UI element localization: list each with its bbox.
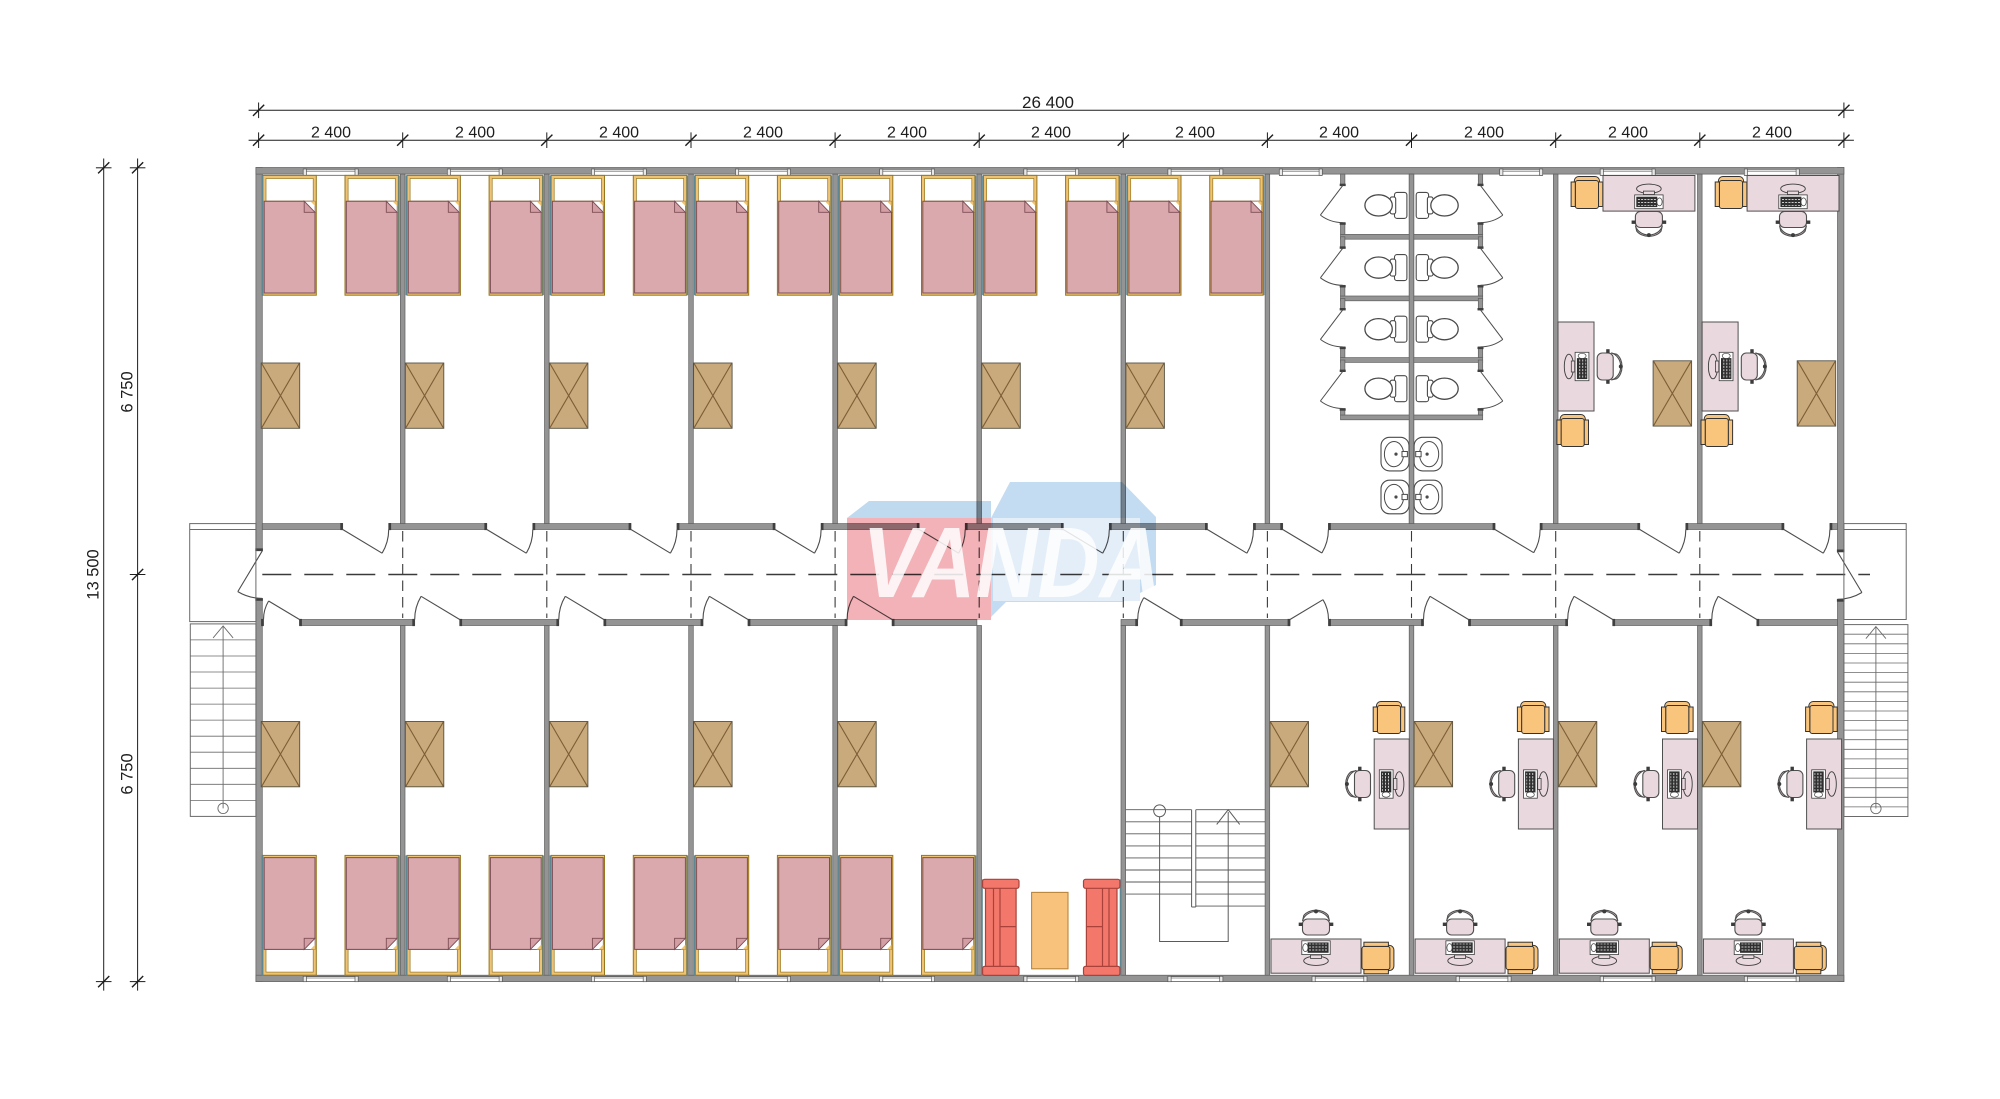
svg-text:2 400: 2 400 — [455, 125, 495, 142]
svg-text:2 400: 2 400 — [1608, 125, 1648, 142]
svg-text:2 400: 2 400 — [1175, 125, 1215, 142]
svg-text:6 750: 6 750 — [118, 753, 136, 794]
svg-text:2 400: 2 400 — [1464, 125, 1504, 142]
svg-text:2 400: 2 400 — [1752, 125, 1792, 142]
svg-text:2 400: 2 400 — [1319, 125, 1359, 142]
svg-text:2 400: 2 400 — [887, 125, 927, 142]
svg-text:6 750: 6 750 — [118, 371, 136, 412]
svg-text:13 500: 13 500 — [85, 549, 103, 599]
svg-text:2 400: 2 400 — [599, 125, 639, 142]
svg-text:26 400: 26 400 — [1022, 93, 1074, 112]
svg-text:2 400: 2 400 — [743, 125, 783, 142]
svg-text:2 400: 2 400 — [311, 125, 351, 142]
svg-text:VANDA: VANDA — [862, 507, 1161, 619]
svg-text:2 400: 2 400 — [1031, 125, 1071, 142]
